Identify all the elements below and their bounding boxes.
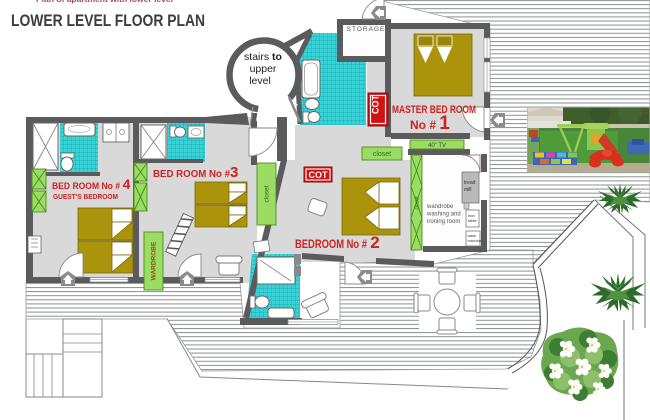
svg-text:GUEST'S BEDROOM: GUEST'S BEDROOM — [53, 192, 118, 201]
svg-text:stairs to: stairs to — [244, 51, 282, 63]
svg-text:machine: machine — [468, 239, 482, 243]
svg-text:Plan of apartment with lower l: Plan of apartment with lower level — [36, 0, 173, 4]
svg-text:upper: upper — [250, 63, 277, 75]
svg-text:tread: tread — [464, 180, 476, 186]
svg-text:table: table — [468, 218, 477, 223]
svg-text:MASTER BED ROOM: MASTER BED ROOM — [392, 104, 476, 116]
svg-text:ironing room: ironing room — [427, 219, 460, 225]
svg-text:COT: COT — [371, 95, 381, 115]
svg-text:40" TV: 40" TV — [428, 143, 446, 149]
svg-text:closet: closet — [373, 151, 391, 158]
svg-text:closet: closet — [415, 196, 421, 210]
svg-text:COT: COT — [309, 170, 329, 180]
svg-text:STORAGE: STORAGE — [347, 26, 386, 33]
svg-text:closet: closet — [264, 185, 271, 202]
svg-text:level: level — [249, 75, 271, 87]
svg-text:mill: mill — [464, 187, 472, 193]
svg-text:washing and: washing and — [426, 212, 461, 218]
svg-text:wash: wash — [468, 234, 477, 238]
svg-text:WARDROBE: WARDROBE — [151, 241, 158, 280]
svg-text:wandrobe: wandrobe — [426, 204, 454, 210]
svg-text:LOWER LEVEL FLOOR PLAN: LOWER LEVEL FLOOR PLAN — [11, 12, 205, 30]
